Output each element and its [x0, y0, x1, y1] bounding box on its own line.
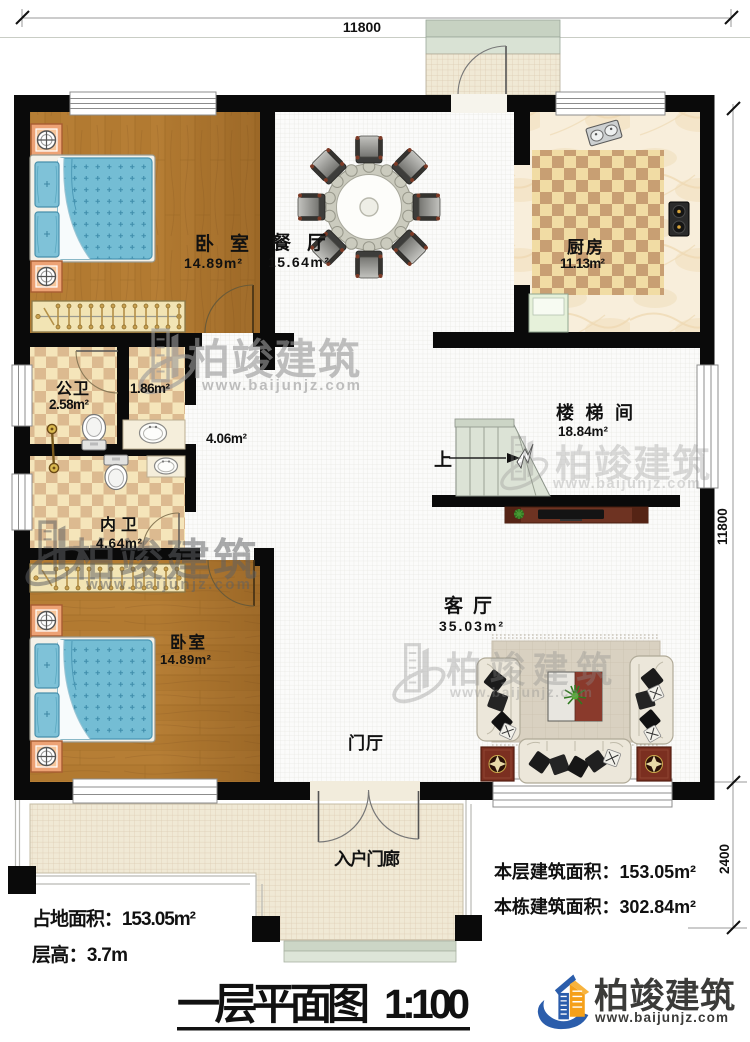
svg-text:楼梯间: 楼梯间 — [556, 402, 633, 423]
svg-text:柏竣建筑: 柏竣建筑 — [188, 336, 360, 383]
svg-text:11800: 11800 — [343, 19, 381, 35]
svg-text:www.baijunjz.com: www.baijunjz.com — [552, 476, 700, 492]
svg-text:www.baijunjz.com: www.baijunjz.com — [594, 1010, 728, 1025]
svg-text:2400: 2400 — [717, 844, 732, 874]
svg-text:18.84m²: 18.84m² — [558, 424, 609, 439]
svg-text:本栋建筑面积：302.84m²: 本栋建筑面积：302.84m² — [494, 896, 696, 917]
svg-text:门厅: 门厅 — [348, 733, 383, 753]
svg-text:www.baijunjz.com: www.baijunjz.com — [449, 684, 592, 700]
svg-text:1.86m²: 1.86m² — [130, 381, 171, 396]
svg-text:35.03m²: 35.03m² — [439, 618, 503, 634]
svg-text:占地面积：153.05m²: 占地面积：153.05m² — [32, 907, 196, 930]
svg-text:14.89m²: 14.89m² — [160, 652, 212, 667]
svg-text:11800: 11800 — [715, 508, 730, 545]
svg-text:11.13m²: 11.13m² — [560, 256, 606, 271]
svg-text:入户门廊: 入户门廊 — [334, 849, 400, 869]
svg-text:一层平面图: 一层平面图 — [177, 981, 370, 1029]
svg-text:14.89m²: 14.89m² — [184, 255, 242, 271]
svg-text:2.58m²: 2.58m² — [49, 397, 90, 412]
svg-text:本层建筑面积：153.05m²: 本层建筑面积：153.05m² — [494, 861, 696, 882]
svg-text:4.06m²: 4.06m² — [206, 431, 248, 446]
svg-text:层高：3.7m: 层高：3.7m — [32, 943, 128, 966]
svg-text:上: 上 — [434, 450, 452, 470]
svg-text:4.64m²: 4.64m² — [96, 536, 143, 551]
svg-text:15.64m²: 15.64m² — [268, 254, 329, 270]
svg-text:1:100: 1:100 — [384, 981, 470, 1027]
svg-text:公卫: 公卫 — [56, 380, 89, 398]
